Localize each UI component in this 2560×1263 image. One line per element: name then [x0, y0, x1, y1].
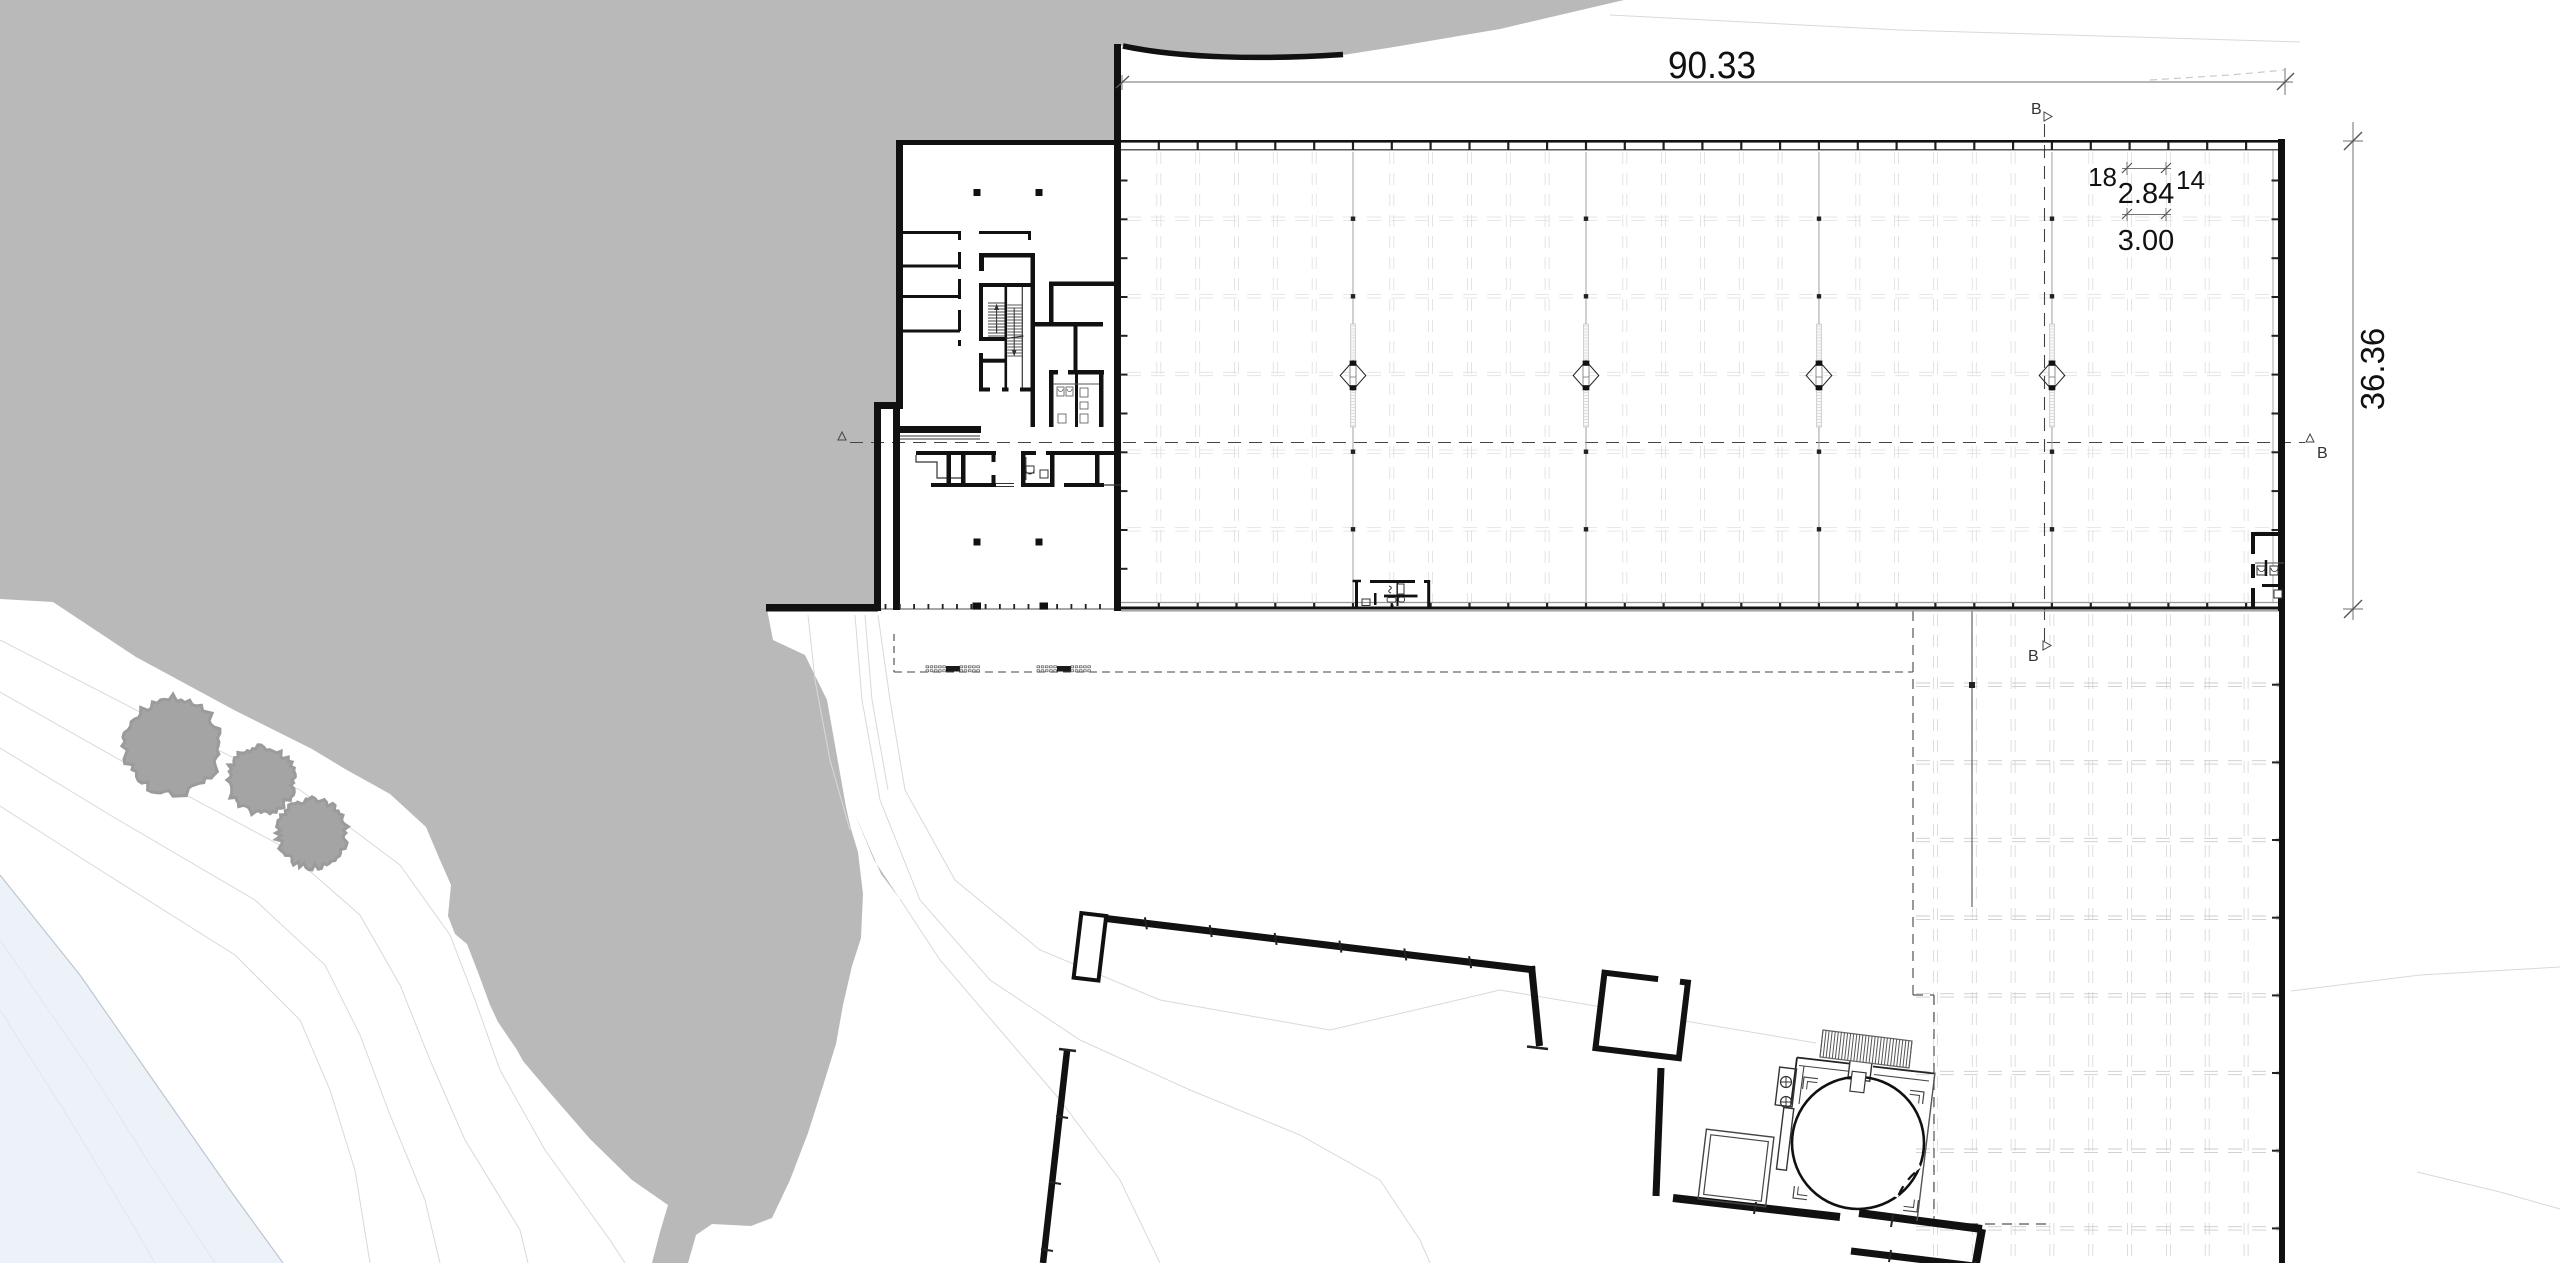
svg-text:18: 18 — [2088, 162, 2117, 192]
svg-text:14: 14 — [2176, 165, 2205, 195]
svg-text:B: B — [2317, 445, 2328, 462]
svg-text:3.00: 3.00 — [2118, 225, 2174, 257]
svg-text:90.33: 90.33 — [1668, 45, 1756, 87]
svg-text:B: B — [2031, 101, 2042, 118]
svg-text:36.36: 36.36 — [2354, 328, 2391, 411]
svg-text:2.84: 2.84 — [2118, 178, 2174, 210]
svg-text:B: B — [2028, 648, 2039, 665]
